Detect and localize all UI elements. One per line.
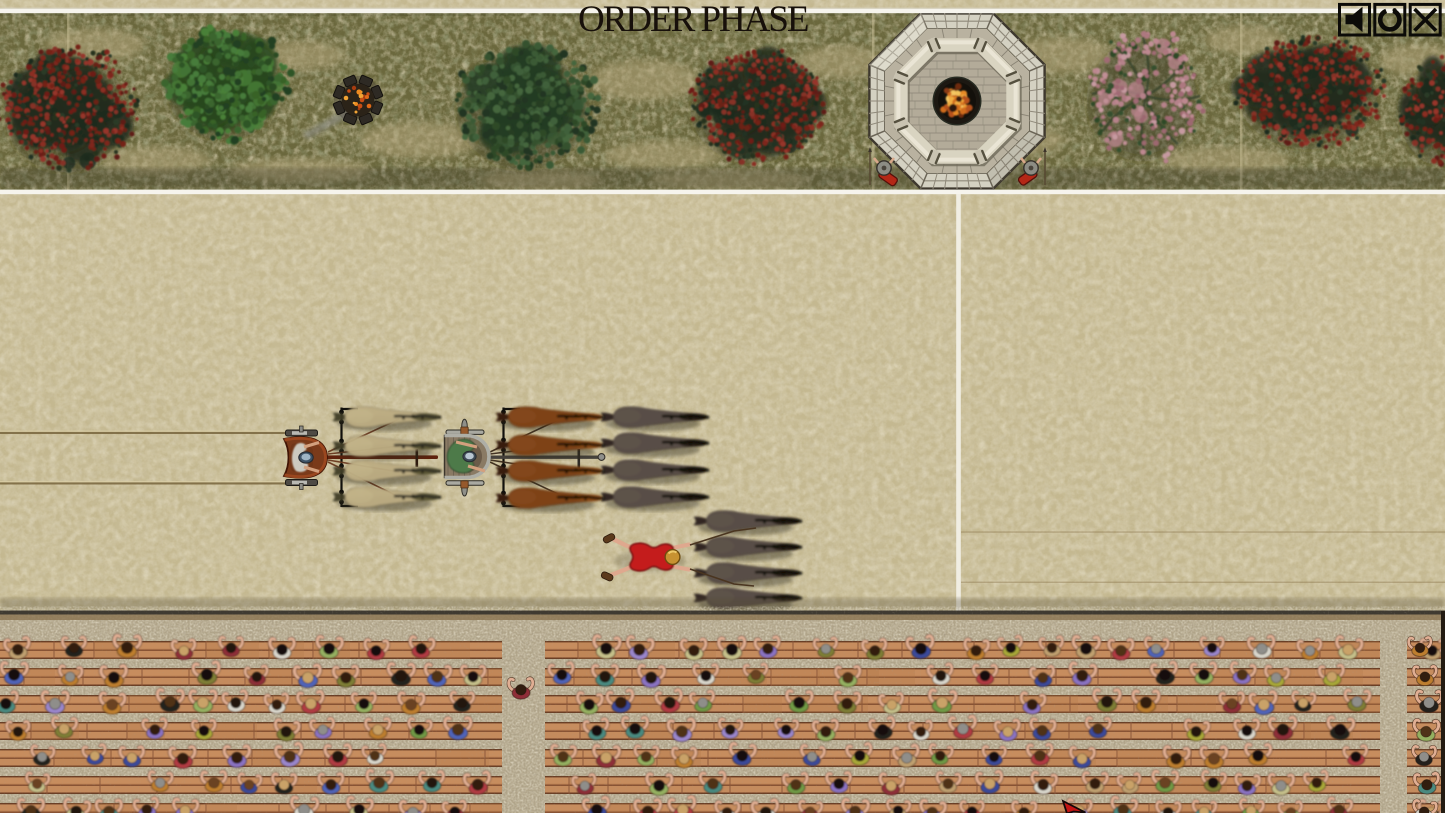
- svg-text:ORDER PHASE: ORDER PHASE: [578, 0, 810, 40]
